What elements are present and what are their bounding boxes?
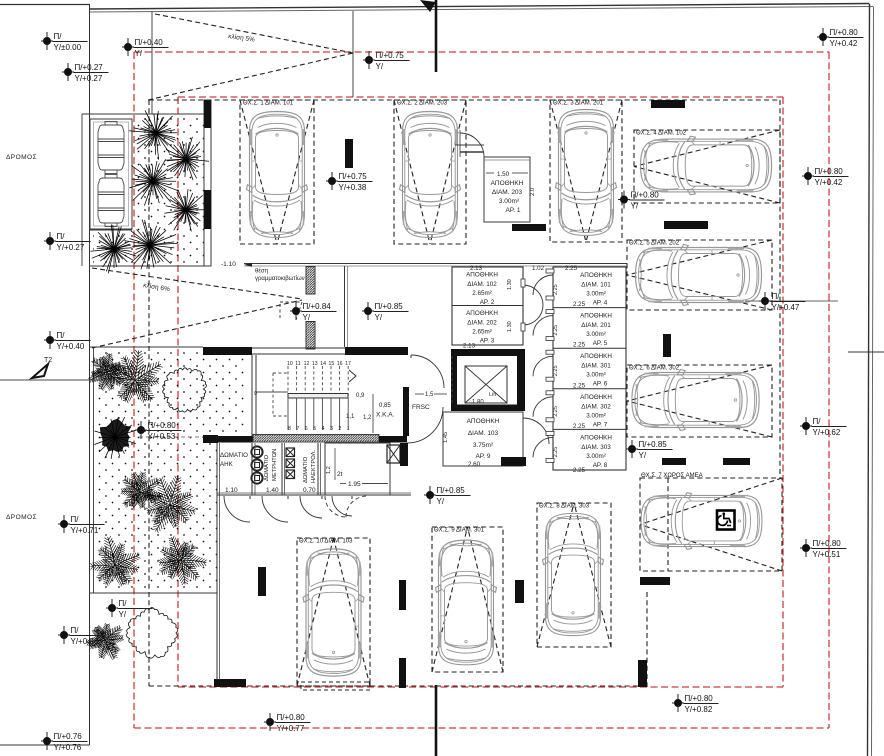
svg-text:3.75m²: 3.75m² <box>473 442 494 449</box>
svg-text:0,85: 0,85 <box>379 403 391 409</box>
svg-text:Y/: Y/ <box>303 313 311 322</box>
svg-text:Y/: Y/ <box>631 202 639 211</box>
svg-text:1,2: 1,2 <box>326 466 332 474</box>
svg-text:4: 4 <box>322 426 325 432</box>
svg-text:ΔΙΑΜ. 301: ΔΙΑΜ. 301 <box>581 363 611 370</box>
svg-text:Y/+0.77: Y/+0.77 <box>277 724 305 733</box>
svg-text:2.25: 2.25 <box>573 342 586 349</box>
svg-text:2.25: 2.25 <box>553 365 559 376</box>
svg-text:Y/+0.82: Y/+0.82 <box>685 705 713 714</box>
svg-text:ΔΩΜΑΤΙΟ: ΔΩΜΑΤΙΟ <box>303 456 309 483</box>
svg-text:Y/+0.42: Y/+0.42 <box>830 39 858 48</box>
svg-text:ΑΡ. 6: ΑΡ. 6 <box>593 381 608 388</box>
svg-text:θέση: θέση <box>255 268 268 275</box>
svg-text:ΘΧ.Σ. 1 ΔΙΑΜ. 101: ΘΧ.Σ. 1 ΔΙΑΜ. 101 <box>243 101 294 107</box>
svg-text:ΑΡ. 8: ΑΡ. 8 <box>593 462 608 469</box>
svg-text:Π/+0.80: Π/+0.80 <box>631 190 660 199</box>
svg-text:Y/: Y/ <box>375 313 383 322</box>
svg-text:1.40: 1.40 <box>266 487 279 494</box>
svg-text:ΘΧ.Σ. 2 ΔΙΑΜ. 203: ΘΧ.Σ. 2 ΔΙΑΜ. 203 <box>397 101 448 107</box>
svg-text:Y/+0.42: Y/+0.42 <box>815 178 843 187</box>
svg-text:9: 9 <box>254 391 257 397</box>
svg-text:Y/+0.71: Y/+0.71 <box>71 526 99 535</box>
svg-text:1.45: 1.45 <box>443 432 449 443</box>
svg-text:ΔΙΑΜ. 202: ΔΙΑΜ. 202 <box>467 320 497 327</box>
svg-text:Π/: Π/ <box>813 417 822 426</box>
svg-text:1,1: 1,1 <box>346 414 355 420</box>
svg-text:Π/+0.80: Π/+0.80 <box>813 539 842 548</box>
svg-text:2.25: 2.25 <box>565 265 578 272</box>
svg-text:6: 6 <box>305 426 308 432</box>
svg-text:ΑΡ. 9: ΑΡ. 9 <box>475 453 490 460</box>
svg-text:2.13: 2.13 <box>463 343 476 350</box>
svg-text:12: 12 <box>304 361 310 367</box>
svg-text:ΜΕΤΡΗΤΩΝ: ΜΕΤΡΗΤΩΝ <box>272 449 278 481</box>
svg-text:0,9: 0,9 <box>356 393 365 399</box>
svg-text:ΔΙΑΜ. 101: ΔΙΑΜ. 101 <box>581 282 611 289</box>
svg-text:2.25: 2.25 <box>573 423 586 430</box>
svg-text:Y/+0.27: Y/+0.27 <box>75 74 103 83</box>
svg-text:1.10: 1.10 <box>225 487 238 494</box>
svg-text:ΑΠΟΘΗΚΗ: ΑΠΟΘΗΚΗ <box>580 353 612 360</box>
svg-text:1.80: 1.80 <box>472 400 484 406</box>
svg-text:3.00m²: 3.00m² <box>586 331 606 338</box>
svg-text:Y/+0.62: Y/+0.62 <box>813 428 841 437</box>
svg-text:3.00m²: 3.00m² <box>586 412 606 419</box>
svg-text:ΔΡΟΜΟΣ: ΔΡΟΜΟΣ <box>6 514 37 521</box>
svg-text:Y/+0.27: Y/+0.27 <box>57 243 85 252</box>
svg-text:8: 8 <box>288 426 291 432</box>
svg-text:ΑΠΟΘΗΚΗ: ΑΠΟΘΗΚΗ <box>466 310 498 317</box>
svg-text:Π/: Π/ <box>71 626 80 635</box>
svg-text:ΘΧ.Σ. 4 ΔΙΑΜ. 102: ΘΧ.Σ. 4 ΔΙΑΜ. 102 <box>636 131 687 137</box>
svg-text:ΑΠΟΘΗΚΗ: ΑΠΟΘΗΚΗ <box>580 272 612 279</box>
svg-text:3.00m²: 3.00m² <box>586 291 606 298</box>
svg-text:ΑΠΟΘΗΚΗ: ΑΠΟΘΗΚΗ <box>467 418 500 425</box>
svg-text:Y/: Y/ <box>639 451 647 460</box>
svg-text:Π/+0.75: Π/+0.75 <box>339 172 368 181</box>
svg-text:Y/+0.51: Y/+0.51 <box>813 550 841 559</box>
svg-text:ΑΡ. 3: ΑΡ. 3 <box>480 338 495 345</box>
svg-text:2.0: 2.0 <box>530 188 536 196</box>
svg-text:Π/+0.27: Π/+0.27 <box>75 63 104 72</box>
svg-text:1.02: 1.02 <box>532 265 545 272</box>
svg-text:Π/: Π/ <box>54 32 63 41</box>
svg-text:0.70: 0.70 <box>303 487 316 494</box>
svg-text:ΘΧ.Σ. 5 ΔΙΑΜ. 202: ΘΧ.Σ. 5 ΔΙΑΜ. 202 <box>629 241 680 247</box>
svg-text:2t: 2t <box>337 471 343 478</box>
svg-text:Π/: Π/ <box>772 292 781 301</box>
svg-text:ΔΙΑΜ. 303: ΔΙΑΜ. 303 <box>581 444 611 451</box>
svg-text:Y/: Y/ <box>376 62 384 71</box>
svg-text:ΑΠΟΘΗΚΗ: ΑΠΟΘΗΚΗ <box>491 180 524 187</box>
svg-text:ΑΠΟΘΗΚΗ: ΑΠΟΘΗΚΗ <box>466 272 498 279</box>
svg-text:FRSC: FRSC <box>412 404 430 411</box>
svg-text:1.30: 1.30 <box>507 321 513 332</box>
svg-text:Y/+0.47: Y/+0.47 <box>772 303 800 312</box>
svg-text:13: 13 <box>312 361 318 367</box>
svg-text:2.25: 2.25 <box>553 406 559 417</box>
svg-text:1,2: 1,2 <box>363 415 372 421</box>
svg-text:ΑΠΟΘΗΚΗ: ΑΠΟΘΗΚΗ <box>580 434 612 441</box>
svg-text:Y/: Y/ <box>437 497 445 506</box>
svg-text:Π/+0.76: Π/+0.76 <box>54 732 83 741</box>
svg-text:2.25: 2.25 <box>573 382 586 389</box>
svg-text:ΗΛΕΚΤΡΟΛ.: ΗΛΕΚΤΡΟΛ. <box>311 450 317 483</box>
svg-text:ΑΡ. 7: ΑΡ. 7 <box>593 421 608 428</box>
svg-text:Π/+0.40: Π/+0.40 <box>135 38 164 47</box>
svg-text:1,5: 1,5 <box>425 392 434 398</box>
svg-text:ΘΧ.Σ. 10 ΔΙΑΜ. 103: ΘΧ.Σ. 10 ΔΙΑΜ. 103 <box>299 539 353 545</box>
svg-text:ΔΩΜΑΤΙΟ: ΔΩΜΑΤΙΟ <box>220 452 248 459</box>
svg-text:ΔΩΜΑΤΙΟ: ΔΩΜΑΤΙΟ <box>264 454 270 481</box>
svg-text:Π/: Π/ <box>57 331 66 340</box>
svg-text:Lift: Lift <box>489 392 497 398</box>
svg-text:3: 3 <box>330 426 333 432</box>
svg-text:Π/: Π/ <box>71 515 80 524</box>
svg-text:Π/: Π/ <box>57 232 66 241</box>
svg-text:Y/: Y/ <box>135 49 143 58</box>
svg-text:Π/+0.80: Π/+0.80 <box>815 167 844 176</box>
svg-text:ΘΧ.Σ. 3 ΔΙΑΜ. 201: ΘΧ.Σ. 3 ΔΙΑΜ. 201 <box>553 101 604 107</box>
svg-text:ΔΙΑΜ. 102: ΔΙΑΜ. 102 <box>467 281 497 288</box>
svg-text:ΔΙΑΜ. 103: ΔΙΑΜ. 103 <box>468 430 499 437</box>
svg-text:ΔΙΑΜ. 302: ΔΙΑΜ. 302 <box>581 403 611 410</box>
svg-text:Y/: Y/ <box>119 610 127 619</box>
svg-text:Π/+0.80: Π/+0.80 <box>277 713 306 722</box>
svg-text:ΘΧ.Σ. 9 ΔΙΑΜ. 301: ΘΧ.Σ. 9 ΔΙΑΜ. 301 <box>434 528 485 534</box>
svg-text:Π/+0.80: Π/+0.80 <box>830 28 859 37</box>
svg-text:ΑΠΟΘΗΚΗ: ΑΠΟΘΗΚΗ <box>580 394 612 401</box>
svg-text:7: 7 <box>296 426 299 432</box>
svg-text:2.25: 2.25 <box>573 301 586 308</box>
svg-text:Y/+0.40: Y/+0.40 <box>57 342 85 351</box>
svg-text:ΘΧ.Σ. 6 ΔΙΑΜ. 302: ΘΧ.Σ. 6 ΔΙΑΜ. 302 <box>629 366 680 372</box>
svg-text:2.60: 2.60 <box>468 461 481 468</box>
svg-text:Χ.Κ.Α.: Χ.Κ.Α. <box>376 412 395 419</box>
svg-text:11: 11 <box>295 361 300 367</box>
svg-text:Π/: Π/ <box>119 599 128 608</box>
svg-text:ΔΙΑΜ. 203: ΔΙΑΜ. 203 <box>492 189 523 196</box>
svg-text:2.25: 2.25 <box>553 284 559 295</box>
svg-text:Π/+0.85: Π/+0.85 <box>639 440 668 449</box>
svg-text:1.95: 1.95 <box>348 481 361 488</box>
svg-text:ΔΡΟΜΟΣ: ΔΡΟΜΟΣ <box>6 154 37 161</box>
svg-text:2.65m²: 2.65m² <box>472 329 492 336</box>
svg-text:Y/+0.76: Y/+0.76 <box>54 743 82 752</box>
svg-text:Π/+0.85: Π/+0.85 <box>375 302 404 311</box>
svg-text:2: 2 <box>338 426 341 432</box>
svg-text:Y/±0.00: Y/±0.00 <box>54 43 82 52</box>
svg-text:Π/+0.75: Π/+0.75 <box>376 51 405 60</box>
svg-text:γραμματοκιβωτίων: γραμματοκιβωτίων <box>255 276 305 282</box>
svg-text:2.25: 2.25 <box>553 325 559 336</box>
svg-text:Π/+0.85: Π/+0.85 <box>437 486 466 495</box>
svg-text:2.65m²: 2.65m² <box>472 290 492 297</box>
svg-text:ΑΡ. 1: ΑΡ. 1 <box>505 207 520 214</box>
svg-text:Y/+0.53: Y/+0.53 <box>148 432 176 441</box>
svg-text:ΔΙΑΜ. 201: ΔΙΑΜ. 201 <box>581 322 611 329</box>
svg-text:2.25: 2.25 <box>553 447 559 458</box>
svg-text:ΑΠΟΘΗΚΗ: ΑΠΟΘΗΚΗ <box>580 313 612 320</box>
svg-text:ΑΡ. 4: ΑΡ. 4 <box>593 300 608 307</box>
svg-text:-1.10: -1.10 <box>221 261 236 268</box>
svg-text:Π/+0.80: Π/+0.80 <box>685 694 714 703</box>
svg-text:ΘΧ.Σ. 8 ΔΙΑΜ. 303: ΘΧ.Σ. 8 ΔΙΑΜ. 303 <box>539 504 590 510</box>
svg-text:ΘΧ.Σ. 7 ΧΩΡΟΣ ΑΜΕΑ: ΘΧ.Σ. 7 ΧΩΡΟΣ ΑΜΕΑ <box>641 473 703 479</box>
svg-text:ΑΡ. 5: ΑΡ. 5 <box>593 340 608 347</box>
svg-text:5: 5 <box>313 426 316 432</box>
svg-text:14: 14 <box>320 361 326 367</box>
svg-text:1: 1 <box>347 426 350 432</box>
svg-text:Y/+0.86: Y/+0.86 <box>71 637 99 646</box>
svg-text:Π/+0.80: Π/+0.80 <box>148 421 177 430</box>
svg-text:Π/+0.84: Π/+0.84 <box>303 302 332 311</box>
svg-text:ΑΗΚ: ΑΗΚ <box>220 461 234 468</box>
svg-text:ΑΡ. 2: ΑΡ. 2 <box>480 299 495 306</box>
svg-text:3.00m²: 3.00m² <box>586 372 606 379</box>
svg-text:2.13: 2.13 <box>470 265 483 272</box>
svg-text:1.50: 1.50 <box>497 171 510 178</box>
svg-text:Y/+0.38: Y/+0.38 <box>339 183 367 192</box>
svg-text:3.00m²: 3.00m² <box>586 453 606 460</box>
svg-text:3.00m²: 3.00m² <box>499 198 520 205</box>
svg-text:1.30: 1.30 <box>507 279 513 290</box>
